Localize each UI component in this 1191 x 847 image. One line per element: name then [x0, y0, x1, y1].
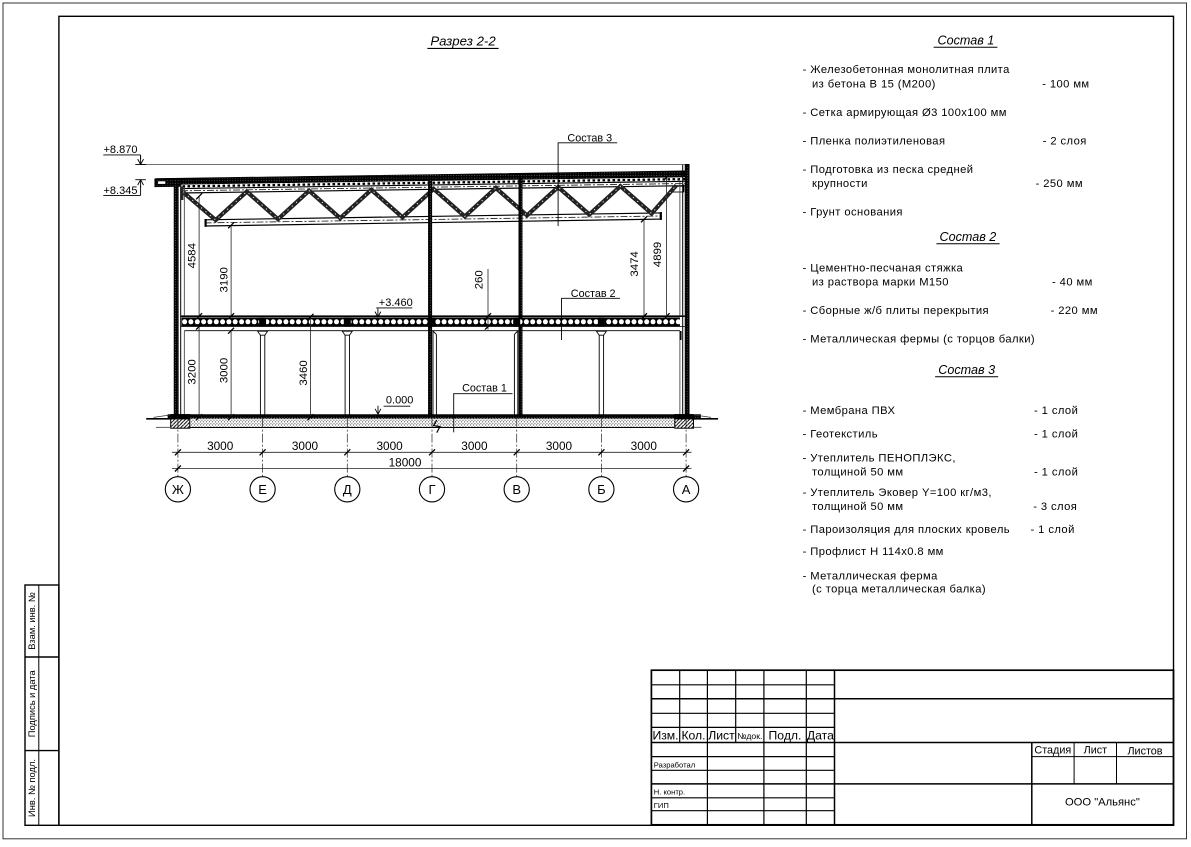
svg-text:- Грунт основания: - Грунт основания: [803, 207, 903, 219]
svg-text:Состав 1: Состав 1: [937, 33, 994, 47]
svg-text:Состав 1: Состав 1: [462, 382, 507, 394]
svg-text:Подл.: Подл.: [769, 729, 802, 743]
svg-text:- 1 слой: - 1 слой: [1034, 405, 1078, 417]
svg-text:3000: 3000: [546, 439, 573, 453]
svg-text:- Сетка армирующая Ø3 100х100: - Сетка армирующая Ø3 100х100 мм: [803, 107, 1007, 119]
svg-text:ГИП: ГИП: [654, 801, 669, 810]
svg-text:3000: 3000: [376, 439, 403, 453]
svg-text:Инв. № подл.: Инв. № подл.: [27, 759, 37, 817]
svg-text:Состав 2: Состав 2: [939, 230, 996, 244]
svg-text:№док.: №док.: [737, 731, 762, 741]
svg-text:- Металлическая ферма: - Металлическая ферма: [803, 571, 939, 583]
svg-text:3000: 3000: [292, 439, 319, 453]
svg-text:- 250 мм: - 250 мм: [1036, 178, 1083, 190]
svg-text:3000: 3000: [461, 439, 488, 453]
svg-text:из раствора марки М150: из раствора марки М150: [812, 276, 949, 288]
svg-text:- 2 слоя: - 2 слоя: [1043, 136, 1087, 148]
svg-text:крупности: крупности: [812, 178, 868, 190]
svg-text:Лист: Лист: [708, 729, 735, 743]
svg-text:- Мембрана ПВХ: - Мембрана ПВХ: [803, 405, 896, 417]
svg-text:- Профлист Н 114х0.8 мм: - Профлист Н 114х0.8 мм: [803, 546, 944, 558]
svg-text:- Пароизоляция для плоских кро: - Пароизоляция для плоских кровель: [803, 524, 1010, 536]
svg-text:- 1 слой: - 1 слой: [1034, 429, 1078, 441]
svg-text:- 100 мм: - 100 мм: [1042, 79, 1089, 91]
svg-text:Состав 3: Состав 3: [938, 363, 995, 377]
svg-text:толщиной 50 мм: толщиной 50 мм: [812, 501, 904, 513]
svg-text:3460: 3460: [298, 360, 310, 385]
svg-text:- 3 слоя: - 3 слоя: [1033, 501, 1077, 513]
svg-text:В: В: [512, 482, 521, 497]
svg-text:4584: 4584: [187, 243, 199, 268]
svg-text:- Подготовка из песка средней: - Подготовка из песка средней: [803, 164, 974, 176]
svg-text:- 40 мм: - 40 мм: [1052, 276, 1093, 288]
svg-text:Разрез 2-2: Разрез 2-2: [430, 33, 496, 48]
svg-text:Дата: Дата: [807, 729, 834, 743]
svg-text:- Пленка полиэтиленовая: - Пленка полиэтиленовая: [803, 136, 946, 148]
svg-text:Изм.: Изм.: [652, 729, 678, 743]
svg-text:ООО "Альянс": ООО "Альянс": [1065, 797, 1140, 809]
svg-text:Д: Д: [343, 482, 352, 497]
svg-text:- Утеплитель Эковер Y=100 кг/м: - Утеплитель Эковер Y=100 кг/м3,: [803, 487, 992, 499]
svg-text:3000: 3000: [207, 439, 234, 453]
svg-text:Листов: Листов: [1127, 745, 1162, 757]
svg-text:260: 260: [473, 270, 485, 289]
svg-text:3190: 3190: [219, 267, 231, 292]
svg-text:Лист: Лист: [1084, 745, 1108, 757]
svg-text:- Металлическая фермы (с торцо: - Металлическая фермы (с торцов балки): [803, 333, 1035, 345]
svg-text:- 1 слой: - 1 слой: [1031, 524, 1075, 536]
svg-text:Взам. инв. №: Взам. инв. №: [27, 592, 37, 650]
svg-text:Стадия: Стадия: [1034, 745, 1071, 757]
svg-text:Разработал: Разработал: [654, 760, 695, 769]
svg-text:Б: Б: [597, 482, 606, 497]
svg-text:+3.460: +3.460: [379, 297, 413, 309]
svg-text:- 1 слой: - 1 слой: [1034, 467, 1078, 479]
svg-text:Н. контр.: Н. контр.: [654, 788, 685, 797]
svg-text:(с торца металлическая балка): (с торца металлическая балка): [812, 583, 986, 595]
svg-text:Ж: Ж: [172, 482, 184, 497]
svg-text:Кол.: Кол.: [681, 729, 705, 743]
svg-text:- Сборные ж/б плиты перекрытия: - Сборные ж/б плиты перекрытия: [803, 305, 989, 317]
svg-text:- 220 мм: - 220 мм: [1051, 305, 1098, 317]
svg-text:А: А: [682, 482, 691, 497]
svg-text:- Цементно-песчаная стяжка: - Цементно-песчаная стяжка: [803, 262, 964, 274]
svg-text:толщиной 50 мм: толщиной 50 мм: [812, 467, 904, 479]
svg-text:- Железобетонная монолитная п: - Железобетонная монолитная плита: [803, 64, 1011, 76]
svg-text:- Геотекстиль: - Геотекстиль: [803, 429, 878, 441]
svg-text:3000: 3000: [219, 358, 231, 383]
svg-text:18000: 18000: [389, 456, 422, 470]
svg-text:- Утеплитель ПЕНОПЛЭКС,: - Утеплитель ПЕНОПЛЭКС,: [803, 453, 956, 465]
svg-text:+8.870: +8.870: [104, 144, 138, 156]
svg-text:0.000: 0.000: [386, 394, 414, 406]
svg-text:Г: Г: [428, 482, 435, 497]
svg-text:из бетона В 15 (М200): из бетона В 15 (М200): [812, 79, 936, 91]
svg-text:Подпись и дата: Подпись и дата: [27, 670, 37, 738]
svg-text:3200: 3200: [187, 359, 199, 384]
svg-text:3000: 3000: [631, 439, 658, 453]
svg-text:3474: 3474: [629, 251, 641, 276]
svg-text:Е: Е: [258, 482, 267, 497]
svg-text:4899: 4899: [652, 242, 664, 267]
